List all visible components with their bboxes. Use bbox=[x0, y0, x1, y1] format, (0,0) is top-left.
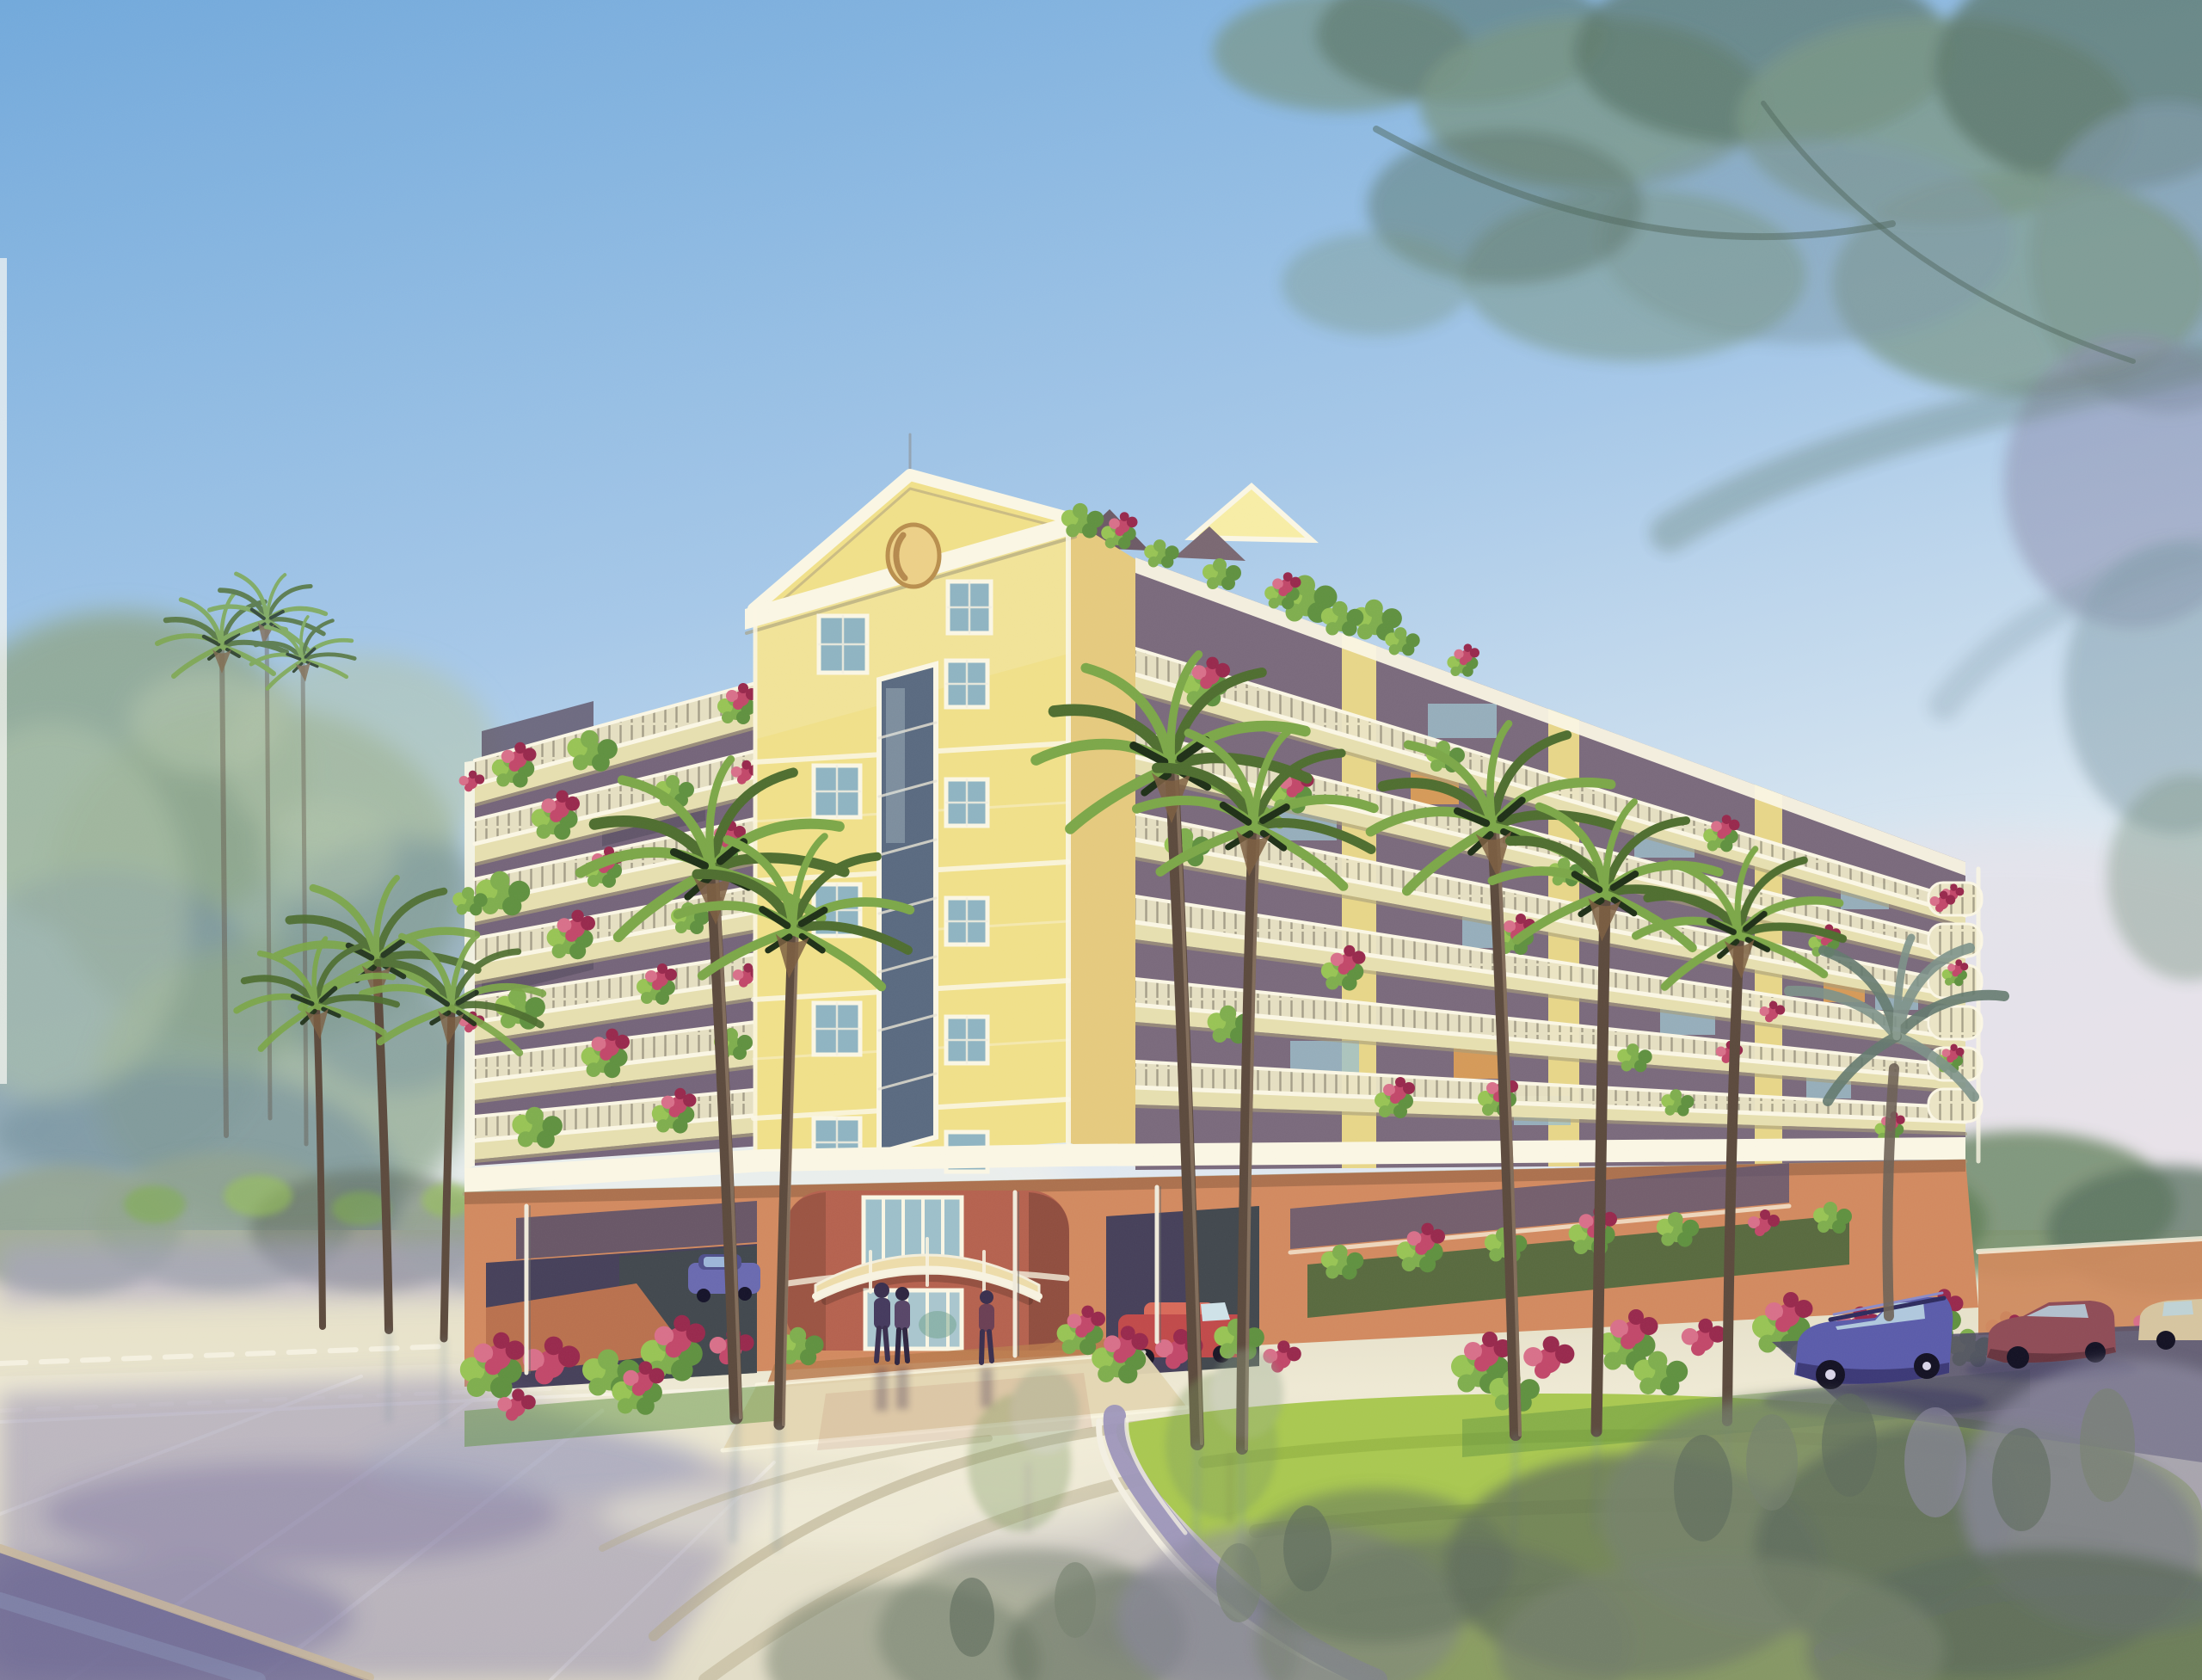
paper-edge bbox=[0, 258, 7, 1084]
watercolor-rendering bbox=[0, 0, 2202, 1680]
paper-texture bbox=[0, 0, 2202, 1680]
painting-svg bbox=[0, 0, 2202, 1680]
